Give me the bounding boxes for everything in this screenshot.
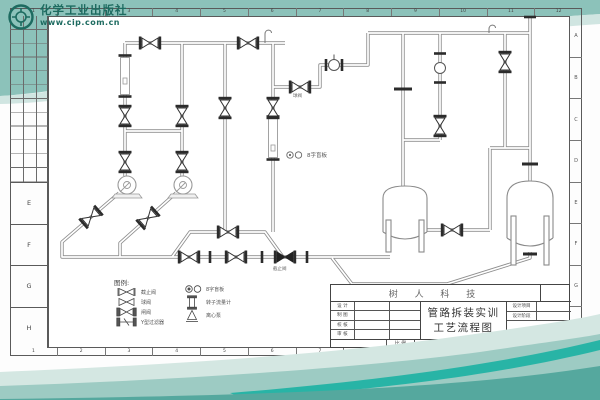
total-label: 共 bbox=[523, 340, 528, 349]
publisher-url: www.cip.com.cn bbox=[40, 18, 128, 27]
company-spare-cell bbox=[541, 285, 571, 302]
legend-label-y-strainer: Y型过滤器 bbox=[141, 319, 164, 326]
project-table: 设计项目 设计阶段 bbox=[506, 302, 571, 339]
legend-label-centrifugal-pump: 离心泵 bbox=[206, 312, 221, 319]
zone-letter: B bbox=[570, 57, 582, 99]
zone-number: 2 bbox=[57, 348, 105, 356]
stage-label: 设计阶段 bbox=[507, 312, 537, 321]
page-label: 页 bbox=[541, 340, 546, 349]
specialty-label: 专 业 bbox=[441, 340, 469, 349]
left-table-grid bbox=[10, 16, 48, 182]
annotation-figure8-blind: 8字盲板 bbox=[307, 151, 327, 159]
zone-letter: D bbox=[570, 140, 582, 182]
legend-label-rotameter: 转子流量计 bbox=[206, 299, 231, 306]
zone-number: 12 bbox=[534, 348, 582, 356]
project-label: 设计项目 bbox=[507, 302, 537, 311]
zone-letter: G bbox=[570, 265, 582, 307]
zone-letter: H bbox=[10, 307, 48, 349]
sig-label-design: 设 计 bbox=[331, 302, 355, 310]
legend-label-figure8-blind: 8字盲板 bbox=[206, 286, 224, 293]
zone-number: 6 bbox=[248, 8, 296, 16]
legend-label-ball-valve: 球阀 bbox=[141, 299, 151, 306]
slide: 1 2 3 4 5 6 7 8 9 10 11 12 1 2 3 4 5 6 7… bbox=[0, 0, 600, 400]
publisher-logo: 化学工业出版社 www.cip.com.cn bbox=[5, 2, 128, 34]
scale-label: 比 例 bbox=[386, 340, 414, 349]
zone-number: 1 bbox=[10, 348, 57, 356]
zone-letter: E bbox=[570, 182, 582, 224]
zone-number: 7 bbox=[296, 8, 344, 16]
sig-label-draft: 制 图 bbox=[331, 311, 355, 319]
sheet-no-label: 第 bbox=[504, 340, 509, 349]
sig-label-approve: 审 核 bbox=[331, 330, 355, 339]
drawing-title: 管路拆装实训 工艺流程图 bbox=[421, 302, 506, 339]
zone-letter: G bbox=[10, 265, 48, 307]
legend-label-gate-valve: 闸阀 bbox=[141, 309, 151, 316]
zone-number: 10 bbox=[439, 348, 487, 356]
zone-number: 11 bbox=[487, 8, 535, 16]
legend-label-stop-valve: 截止阀 bbox=[141, 289, 156, 296]
zone-letter: A bbox=[570, 16, 582, 57]
zone-number: 4 bbox=[152, 348, 200, 356]
left-table-divider bbox=[36, 16, 37, 182]
zone-letter: H bbox=[570, 306, 582, 348]
zone-number: 8 bbox=[343, 348, 391, 356]
zone-number: 7 bbox=[296, 348, 344, 356]
drawing-title-line1: 管路拆装实训 bbox=[428, 306, 500, 321]
title-block: 树 人 科 技 设 计 制 图 校 核 审 核 管路拆装实训 工艺流程图 设计项… bbox=[330, 284, 570, 348]
sheet-label: 张 bbox=[560, 340, 565, 349]
sig-label-check: 校 核 bbox=[331, 321, 355, 329]
zone-number: 6 bbox=[248, 348, 296, 356]
company-name: 树 人 科 技 bbox=[331, 285, 541, 302]
signature-table: 设 计 制 图 校 核 审 核 bbox=[331, 302, 421, 339]
zone-letter: F bbox=[570, 223, 582, 265]
zone-number: 5 bbox=[200, 348, 248, 356]
publisher-name: 化学工业出版社 bbox=[40, 2, 128, 18]
title-block-bottom-row: 比 例 专 业 第 共 页 张 bbox=[331, 339, 571, 349]
publisher-emblem-icon bbox=[5, 2, 37, 34]
sheet-count-cell: 第 共 页 张 bbox=[496, 340, 571, 349]
zone-number: 5 bbox=[200, 8, 248, 16]
zone-number: 9 bbox=[391, 348, 439, 356]
zone-number: 12 bbox=[534, 8, 582, 16]
annotation-ball-valve: 球阀 bbox=[293, 93, 302, 99]
title-block-company-row: 树 人 科 技 bbox=[331, 285, 571, 302]
zone-strip-right: A B C D E F G H bbox=[570, 16, 582, 348]
left-margin-table: E F G H bbox=[10, 16, 48, 348]
left-table-divider bbox=[23, 16, 24, 182]
zone-strip-bottom: 1 2 3 4 5 6 7 8 9 10 11 12 bbox=[10, 348, 582, 356]
zone-letter: F bbox=[10, 224, 48, 266]
zone-letter: E bbox=[10, 182, 48, 224]
zone-number: 3 bbox=[105, 348, 153, 356]
zone-number: 4 bbox=[152, 8, 200, 16]
zone-number: 8 bbox=[343, 8, 391, 16]
annotation-stop-valve: 截止阀 bbox=[273, 266, 287, 272]
zone-number: 11 bbox=[487, 348, 535, 356]
zone-number: 9 bbox=[391, 8, 439, 16]
drawing-title-line2: 工艺流程图 bbox=[434, 321, 494, 336]
zone-letter: C bbox=[570, 98, 582, 140]
zone-number: 10 bbox=[439, 8, 487, 16]
legend-title: 图例: bbox=[114, 277, 129, 287]
